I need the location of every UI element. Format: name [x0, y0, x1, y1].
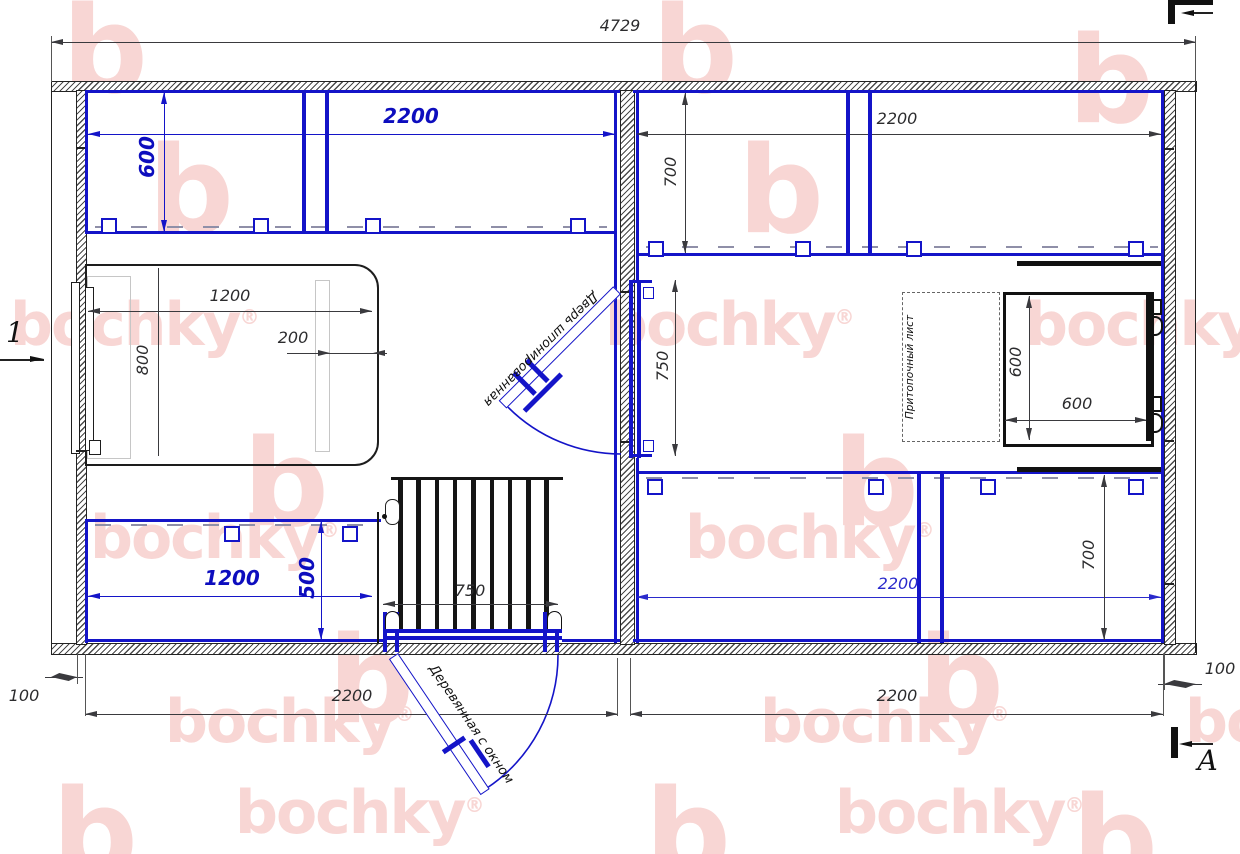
fitting-square — [570, 218, 586, 234]
line — [636, 90, 639, 280]
dimension-arrow — [383, 601, 395, 607]
dashed-line — [646, 477, 1158, 479]
dim-right-shelf-depth: 700 — [661, 132, 681, 212]
line — [85, 519, 88, 643]
dim-stove-depth: 600 — [1027, 394, 1127, 413]
fitting-square — [906, 241, 922, 257]
window-frame-outer — [71, 282, 80, 454]
radiator-bar — [544, 480, 549, 630]
line — [1005, 420, 1147, 421]
watermark-registered: ® — [1064, 793, 1084, 817]
radiator-valve — [385, 499, 400, 525]
dimension-arrow — [1184, 39, 1196, 45]
dimension-arrow — [318, 628, 324, 640]
dimension-arrow — [360, 593, 372, 599]
section-mark-1-label: 1 — [6, 316, 24, 349]
watermark-letter: b — [62, 0, 148, 112]
bed-headboard — [315, 280, 330, 452]
watermark-registered: ® — [834, 305, 854, 329]
dimension-arrow — [603, 131, 615, 137]
watermark-registered: ® — [464, 793, 484, 817]
dimension-arrow — [1026, 296, 1032, 308]
dimension-arrow — [88, 131, 100, 137]
dim-mid-door-width: 750 — [653, 326, 673, 406]
door-frame-bracket — [643, 440, 654, 452]
line — [85, 714, 618, 715]
dim-entry-door-width: 750 — [420, 581, 520, 600]
stove-clamp — [1148, 413, 1163, 433]
line — [1171, 727, 1178, 758]
dim-right-bench-depth: 700 — [1079, 515, 1099, 595]
radiator-bar — [453, 480, 458, 630]
line — [614, 90, 617, 643]
line — [1104, 475, 1105, 640]
dimension-arrow — [88, 593, 100, 599]
line — [158, 268, 159, 456]
wall-joint-tick — [76, 450, 85, 452]
line — [1017, 467, 1163, 472]
line — [88, 134, 615, 135]
dimension-arrow — [682, 93, 688, 105]
dimension-arrow — [318, 350, 330, 356]
line — [1029, 296, 1030, 440]
radiator-bar — [435, 480, 440, 630]
line — [77, 654, 78, 684]
line — [321, 521, 322, 640]
dim-left-shelf-width: 2200 — [351, 104, 471, 128]
wall-joint-tick — [1164, 440, 1174, 442]
fitting-square — [648, 241, 664, 257]
wall-joint-tick — [1164, 583, 1174, 585]
line — [636, 134, 1161, 135]
dim-bench-length: 1200 — [170, 566, 294, 590]
dim-overall-width: 4729 — [560, 16, 680, 35]
watermark-letter: b — [52, 775, 138, 854]
dimension-arrow — [1149, 594, 1161, 600]
fitting-square — [1128, 241, 1144, 257]
line — [685, 93, 686, 253]
dim-stove-width: 600 — [1006, 322, 1026, 402]
watermark-letter: b — [1072, 782, 1158, 854]
dimension-arrow — [1149, 131, 1161, 137]
line — [51, 81, 52, 653]
door-jamb-arc — [547, 611, 562, 629]
dim-right-bench-width: 2200 — [846, 574, 950, 593]
fitting-square — [795, 241, 811, 257]
wall-right — [1164, 90, 1176, 645]
radiator-bar — [508, 480, 513, 630]
dim-left-shelf-depth: 600 — [137, 117, 157, 197]
dimension-arrow — [606, 711, 618, 717]
fitting-square — [365, 218, 381, 234]
line — [325, 90, 329, 233]
door-jamb-arc — [385, 611, 400, 629]
line — [85, 519, 381, 522]
dimension-arrow — [360, 308, 372, 314]
dimension-arrow — [630, 711, 642, 717]
line — [85, 90, 88, 233]
dimension-arrow — [1026, 428, 1032, 440]
fitting-square — [253, 218, 269, 234]
fitting-square — [1128, 479, 1144, 495]
watermark-word: bochky® — [685, 508, 934, 568]
door-frame-bracket — [643, 287, 654, 299]
stove-clamp — [1148, 396, 1162, 412]
dimension-arrow — [1135, 417, 1147, 423]
radiator-bar — [471, 480, 476, 630]
dim-bed-width: 800 — [133, 320, 153, 400]
dashed-line — [95, 226, 607, 228]
diamond-tick — [51, 673, 77, 681]
line — [630, 714, 1163, 715]
dim-bed-length: 1200 — [170, 286, 290, 305]
line — [636, 458, 639, 643]
line — [630, 658, 631, 716]
line — [377, 512, 379, 643]
dimension-arrow — [546, 601, 558, 607]
dim-bottom-right-room: 2200 — [835, 686, 959, 705]
dim-bench-depth: 500 — [297, 533, 317, 623]
wall-joint-tick — [1164, 148, 1174, 150]
line — [88, 311, 372, 312]
dimension-arrow — [30, 356, 44, 362]
mid-door-leaf — [499, 286, 621, 408]
line — [391, 477, 563, 480]
wall-joint-tick — [76, 147, 85, 149]
line — [675, 280, 676, 456]
dim-bottom-left-room: 2200 — [290, 686, 414, 705]
stove-clamp — [1148, 299, 1162, 315]
line — [383, 636, 562, 640]
dimension-arrow — [373, 350, 385, 356]
door-handle-bar — [442, 736, 466, 755]
line — [85, 639, 384, 642]
dimension-arrow — [1005, 417, 1017, 423]
line — [917, 471, 921, 643]
line — [940, 471, 944, 643]
line — [636, 597, 1161, 598]
line — [562, 639, 620, 642]
radiator-bar — [490, 480, 495, 630]
watermark-word: bochky® — [605, 295, 854, 355]
line — [383, 604, 558, 605]
dashed-line — [646, 246, 1158, 248]
line — [629, 280, 633, 458]
dimension-arrow — [318, 521, 324, 533]
dimension-arrow — [1181, 10, 1194, 16]
dimension-arrow — [682, 241, 688, 253]
line — [51, 42, 1196, 43]
watermark-word: bochky® — [235, 783, 484, 843]
line — [1195, 81, 1196, 653]
line — [164, 92, 165, 232]
mid-door-swing-arc — [508, 407, 621, 454]
fitting-square — [101, 218, 117, 234]
watermark-letter: b — [738, 132, 824, 252]
fitting-square — [342, 526, 358, 542]
dimension-arrow — [1179, 741, 1192, 747]
radiator-bar — [416, 480, 421, 630]
fitting-square — [980, 479, 996, 495]
line — [302, 90, 306, 233]
dimension-arrow — [636, 131, 648, 137]
dimension-arrow — [1151, 711, 1163, 717]
line — [287, 353, 387, 354]
fitting-square — [647, 479, 663, 495]
dim-right-shelf-width: 2200 — [845, 109, 949, 128]
line — [1164, 654, 1165, 690]
line — [1017, 261, 1163, 266]
dimension-arrow — [85, 711, 97, 717]
dimension-arrow — [1101, 628, 1107, 640]
line — [637, 280, 641, 458]
dimension-arrow — [672, 280, 678, 292]
stove-clamp — [1148, 316, 1163, 336]
line — [636, 253, 1164, 256]
line — [633, 90, 1164, 93]
line — [88, 596, 372, 597]
line — [85, 654, 86, 716]
dim-wall-offset-left: 100 — [0, 686, 48, 705]
line — [633, 639, 1164, 642]
stove-sheet-label: Притопочный лист — [900, 312, 920, 422]
fitting-square — [868, 479, 884, 495]
watermark-letter: b — [148, 132, 234, 252]
watermark-letter: b — [645, 775, 731, 854]
section-mark-a-label: А — [1197, 744, 1218, 777]
line — [617, 658, 618, 716]
fitting-square — [224, 526, 240, 542]
dim-wall-offset-right: 100 — [1196, 659, 1240, 678]
pipe-dot — [382, 514, 387, 519]
dimension-arrow — [1101, 475, 1107, 487]
dimension-arrow — [51, 39, 63, 45]
line — [1168, 0, 1175, 24]
dim-bed-offset: 200 — [253, 328, 333, 347]
window-latch — [89, 440, 101, 455]
line — [1161, 90, 1164, 643]
dimension-arrow — [161, 92, 167, 104]
dimension-arrow — [636, 594, 648, 600]
radiator-bar — [526, 480, 531, 630]
watermark-word: bochky® — [835, 783, 1084, 843]
dimension-arrow — [672, 444, 678, 456]
line — [1175, 0, 1213, 5]
dimension-arrow — [161, 220, 167, 232]
line — [383, 629, 562, 633]
floor-plan-drawing: 4729 2200 600 1200 800 200 1200 500 750 … — [0, 0, 1240, 854]
dimension-arrow — [88, 308, 100, 314]
